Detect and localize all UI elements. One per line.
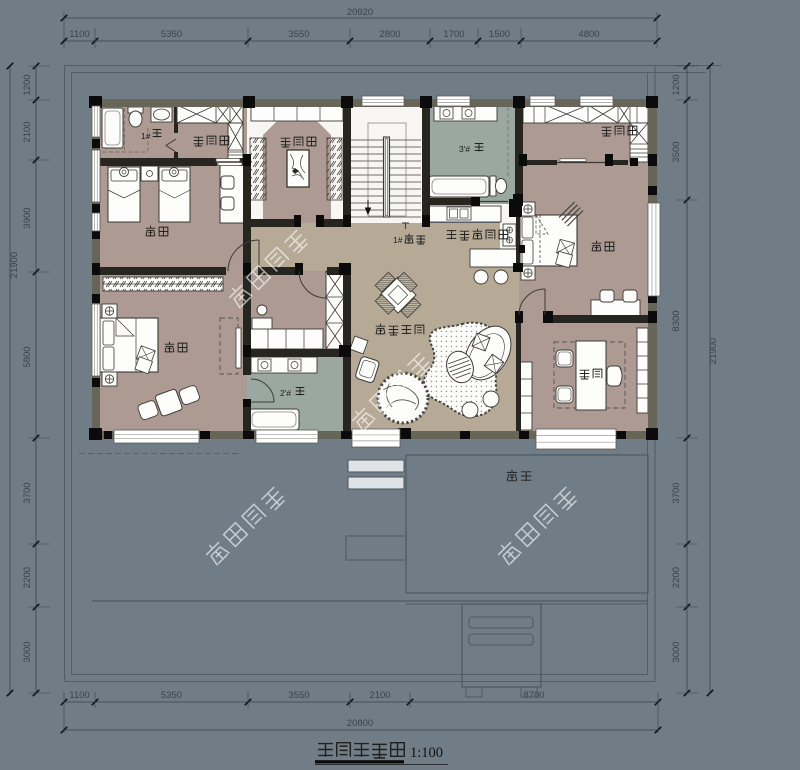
svg-text:1#: 1# xyxy=(141,131,151,141)
svg-text:1500: 1500 xyxy=(489,29,510,40)
svg-text:3550: 3550 xyxy=(288,690,309,701)
svg-text:3900: 3900 xyxy=(22,207,33,228)
svg-text:4800: 4800 xyxy=(578,29,599,40)
svg-text:2100: 2100 xyxy=(22,121,33,142)
svg-text:1200: 1200 xyxy=(22,74,33,95)
svg-text:2200: 2200 xyxy=(22,567,33,588)
svg-text:5350: 5350 xyxy=(161,29,182,40)
svg-text:20920: 20920 xyxy=(347,7,373,18)
svg-text:3'#: 3'# xyxy=(459,144,470,154)
svg-text:3000: 3000 xyxy=(671,641,682,662)
svg-text:21900: 21900 xyxy=(9,252,20,278)
svg-text:3550: 3550 xyxy=(288,29,309,40)
svg-text:1100: 1100 xyxy=(69,690,89,701)
svg-text:1700: 1700 xyxy=(443,29,464,40)
svg-text:1:100: 1:100 xyxy=(410,745,443,761)
svg-text:5350: 5350 xyxy=(161,690,182,701)
svg-text:5800: 5800 xyxy=(22,346,33,367)
svg-text:20800: 20800 xyxy=(347,718,373,729)
svg-text:8700: 8700 xyxy=(523,690,544,701)
svg-text:2100: 2100 xyxy=(369,690,390,701)
svg-text:2800: 2800 xyxy=(379,29,400,40)
svg-text:8300: 8300 xyxy=(671,310,682,331)
svg-text:2200: 2200 xyxy=(671,567,682,588)
svg-text:3000: 3000 xyxy=(22,641,33,662)
svg-text:1#: 1# xyxy=(393,235,403,245)
svg-text:3700: 3700 xyxy=(22,482,33,503)
svg-text:3700: 3700 xyxy=(671,482,682,503)
svg-text:21900: 21900 xyxy=(708,338,719,364)
svg-text:2'#: 2'# xyxy=(280,388,291,398)
svg-text:3500: 3500 xyxy=(671,141,682,162)
svg-text:1100: 1100 xyxy=(69,29,89,40)
svg-text:1200: 1200 xyxy=(671,74,682,95)
